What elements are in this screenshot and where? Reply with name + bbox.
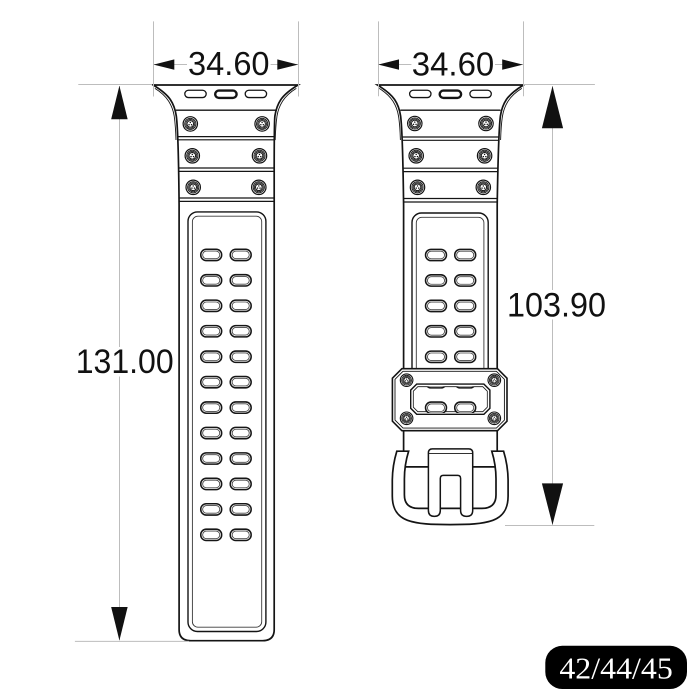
svg-text:34.60: 34.60 — [412, 47, 495, 84]
svg-text:103.90: 103.90 — [507, 287, 606, 325]
svg-text:34.60: 34.60 — [188, 46, 270, 83]
svg-text:42/44/45: 42/44/45 — [559, 651, 673, 685]
svg-text:131.00: 131.00 — [76, 343, 174, 381]
